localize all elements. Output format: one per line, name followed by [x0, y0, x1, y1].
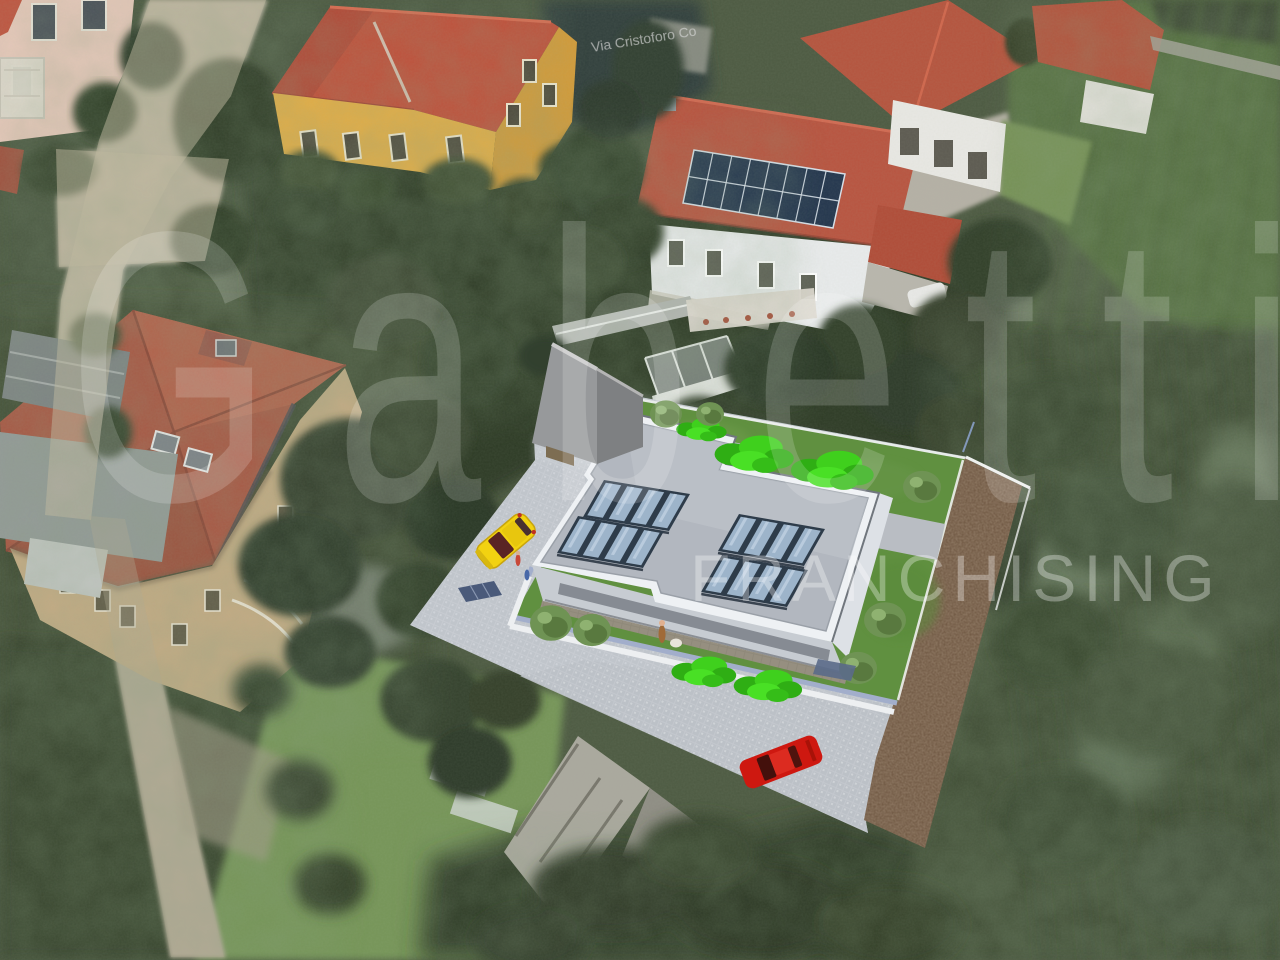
svg-text:Gabetti: Gabetti [68, 152, 1280, 582]
svg-text:FRANCHISING: FRANCHISING [690, 541, 1222, 615]
